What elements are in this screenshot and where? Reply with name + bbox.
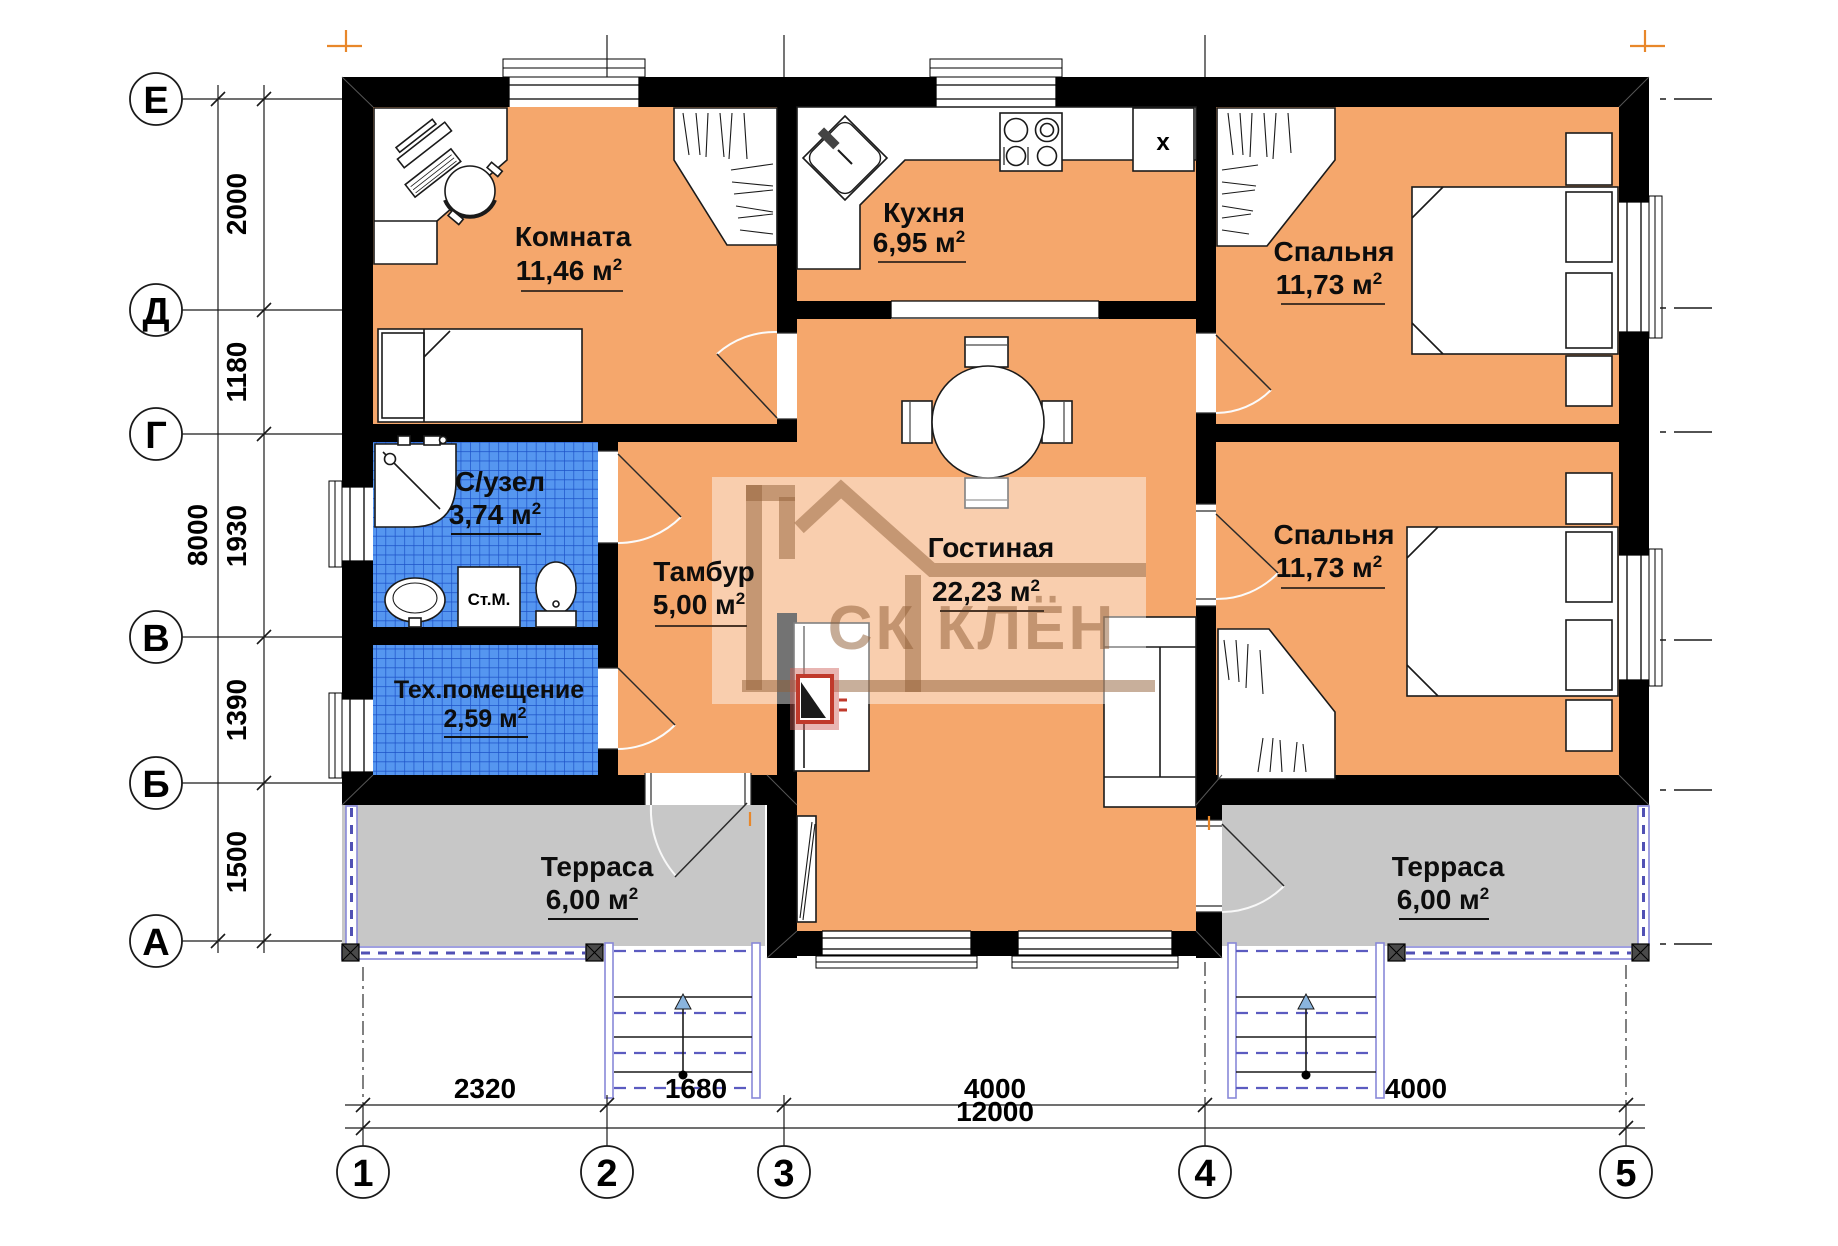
svg-text:Тамбур: Тамбур bbox=[653, 556, 755, 587]
svg-text:Б: Б bbox=[142, 764, 169, 806]
svg-text:4000: 4000 bbox=[1385, 1073, 1447, 1104]
svg-text:6,00 м2: 6,00 м2 bbox=[1397, 884, 1489, 915]
svg-text:Тех.помещение: Тех.помещение bbox=[394, 676, 584, 704]
svg-text:6,95 м2: 6,95 м2 bbox=[873, 227, 965, 258]
svg-text:11,46 м2: 11,46 м2 bbox=[516, 255, 622, 286]
svg-text:2,59 м2: 2,59 м2 bbox=[443, 705, 526, 733]
svg-text:6,00 м2: 6,00 м2 bbox=[546, 884, 638, 915]
svg-text:5: 5 bbox=[1615, 1153, 1636, 1195]
svg-text:1930: 1930 bbox=[221, 505, 252, 567]
svg-text:3: 3 bbox=[773, 1153, 794, 1195]
svg-text:Спальня: Спальня bbox=[1274, 236, 1395, 267]
svg-text:С/узел: С/узел bbox=[455, 466, 545, 497]
svg-text:4: 4 bbox=[1194, 1153, 1215, 1195]
svg-text:Д: Д bbox=[142, 291, 169, 333]
svg-text:Кухня: Кухня bbox=[883, 197, 965, 228]
svg-text:1680: 1680 bbox=[665, 1073, 727, 1104]
svg-text:А: А bbox=[142, 922, 169, 964]
svg-text:Г: Г bbox=[145, 415, 167, 457]
svg-text:12000: 12000 bbox=[956, 1096, 1034, 1127]
svg-text:Спальня: Спальня bbox=[1274, 519, 1395, 550]
svg-text:Комната: Комната bbox=[515, 221, 632, 252]
svg-text:Е: Е bbox=[143, 80, 168, 122]
svg-text:1180: 1180 bbox=[221, 342, 252, 403]
svg-text:2320: 2320 bbox=[454, 1073, 516, 1104]
svg-text:2: 2 bbox=[596, 1153, 617, 1195]
svg-text:x: x bbox=[1156, 129, 1170, 156]
svg-text:Ст.М.: Ст.М. bbox=[468, 590, 511, 609]
svg-text:В: В bbox=[142, 618, 169, 660]
svg-text:8000: 8000 bbox=[182, 504, 213, 566]
svg-text:22,23 м2: 22,23 м2 bbox=[932, 576, 1040, 607]
svg-text:3,74 м2: 3,74 м2 bbox=[449, 499, 541, 530]
svg-text:5,00 м2: 5,00 м2 bbox=[653, 589, 745, 620]
svg-text:11,73 м2: 11,73 м2 bbox=[1276, 552, 1382, 583]
svg-text:Гостиная: Гостиная bbox=[928, 532, 1055, 563]
svg-text:1: 1 bbox=[352, 1153, 373, 1195]
svg-text:2000: 2000 bbox=[221, 173, 252, 235]
svg-text:Терраса: Терраса bbox=[541, 851, 654, 882]
svg-text:1390: 1390 bbox=[221, 679, 252, 741]
svg-text:1500: 1500 bbox=[221, 831, 252, 893]
svg-text:11,73 м2: 11,73 м2 bbox=[1276, 269, 1382, 300]
svg-text:Терраса: Терраса bbox=[1392, 851, 1505, 882]
